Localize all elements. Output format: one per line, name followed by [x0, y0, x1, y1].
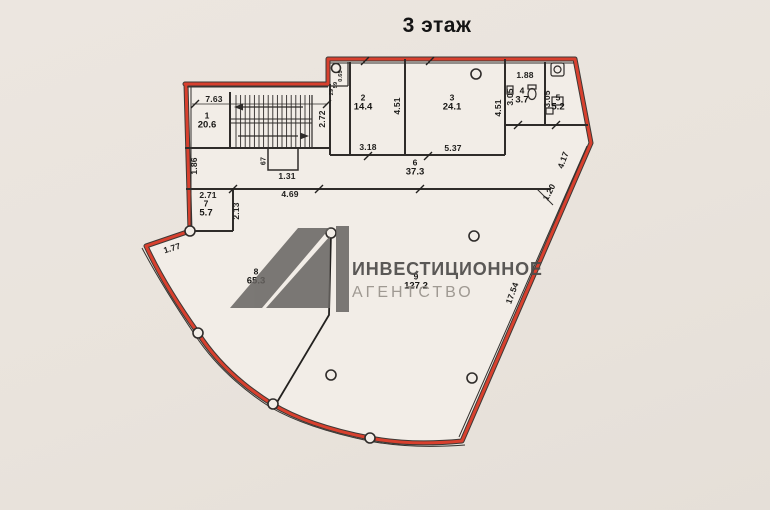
room-label: 865.3	[247, 267, 266, 286]
dimension-label: 1.88	[516, 70, 533, 80]
dimension-label: 1.31	[278, 171, 295, 181]
dimension-label: 2.13	[231, 202, 241, 219]
dimension-label: 2.72	[317, 110, 327, 127]
column-marker	[326, 228, 336, 238]
column-marker	[185, 226, 195, 236]
room-label: 637.3	[406, 158, 425, 177]
column-marker	[469, 231, 479, 241]
dimension-label: 0.65	[338, 70, 344, 82]
room-label: 324.1	[443, 93, 462, 112]
dimension-label: 29	[329, 89, 335, 96]
room-label: 43.7	[515, 86, 528, 105]
dimension-label: 7.63	[205, 94, 222, 104]
dimension-label: 4.69	[281, 189, 298, 199]
dimension-label: 59	[333, 82, 339, 89]
column-marker	[365, 433, 375, 443]
dimension-label: 67	[261, 157, 268, 165]
column-marker	[467, 373, 477, 383]
room-label: 75.7	[199, 199, 212, 218]
dimension-label: 4.51	[392, 97, 402, 114]
room-label: 55.2	[551, 93, 564, 112]
room-label: 9127.2	[404, 272, 428, 291]
floor-plan-page: 3 этаж	[0, 0, 770, 510]
column-marker	[193, 328, 203, 338]
dimension-label: 3.18	[359, 142, 376, 152]
room-label: 120.6	[198, 111, 217, 130]
dimension-label: 4.51	[493, 99, 503, 116]
column-marker	[471, 69, 481, 79]
floor-plan-drawing	[0, 0, 770, 510]
dimension-label: 5.37	[444, 143, 461, 153]
column-marker	[326, 370, 336, 380]
dimension-label: 1.86	[189, 157, 199, 174]
room-label: 214.4	[354, 93, 373, 112]
dimension-label: 3.05	[505, 88, 515, 105]
column-marker	[268, 399, 278, 409]
